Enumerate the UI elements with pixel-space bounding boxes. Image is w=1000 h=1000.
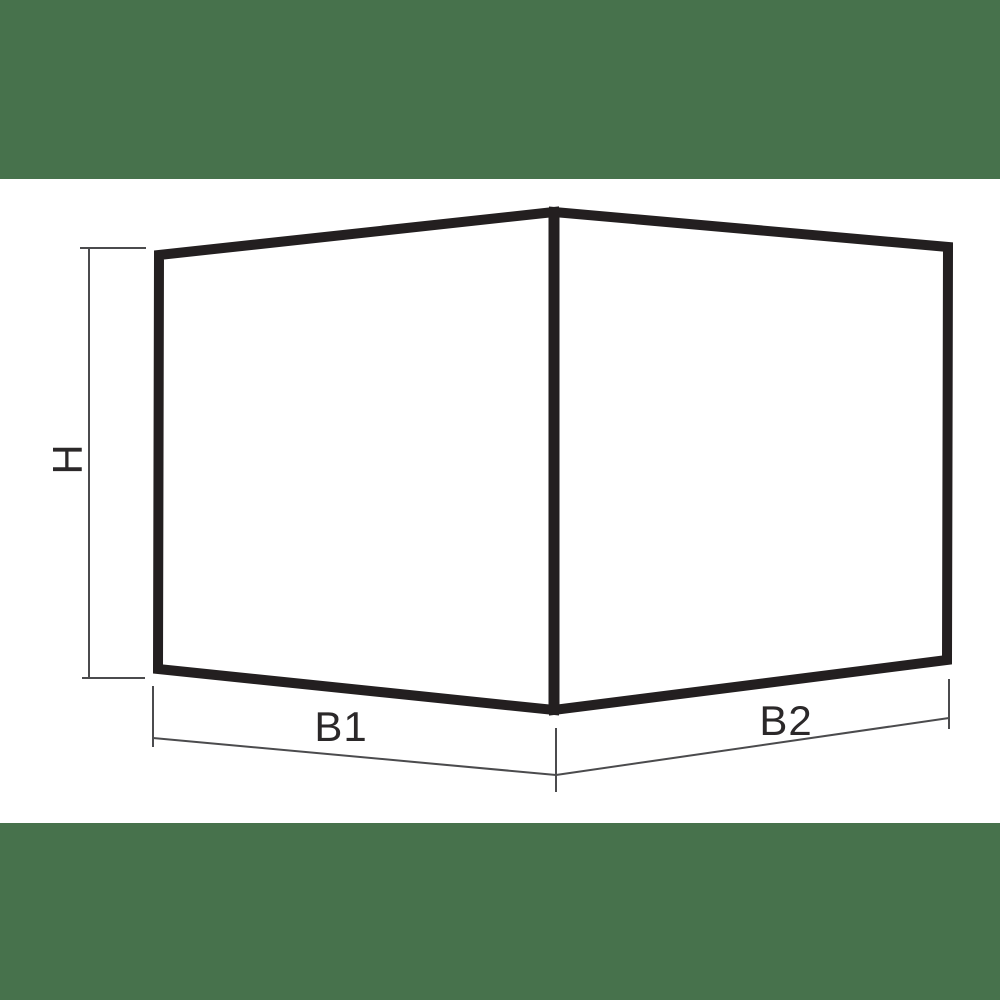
bottom-banner	[0, 823, 1000, 1000]
page: H B1 B2	[0, 0, 1000, 1000]
top-banner	[0, 0, 1000, 179]
base-right-label: B2	[759, 697, 812, 744]
b2-dimension-line	[556, 718, 949, 775]
height-label: H	[44, 443, 91, 474]
diagram-svg: H B1 B2	[0, 0, 1000, 1000]
base-left-label: B1	[314, 703, 367, 750]
right-panel	[554, 212, 948, 710]
corner-panels	[158, 212, 948, 710]
left-panel	[158, 212, 554, 710]
